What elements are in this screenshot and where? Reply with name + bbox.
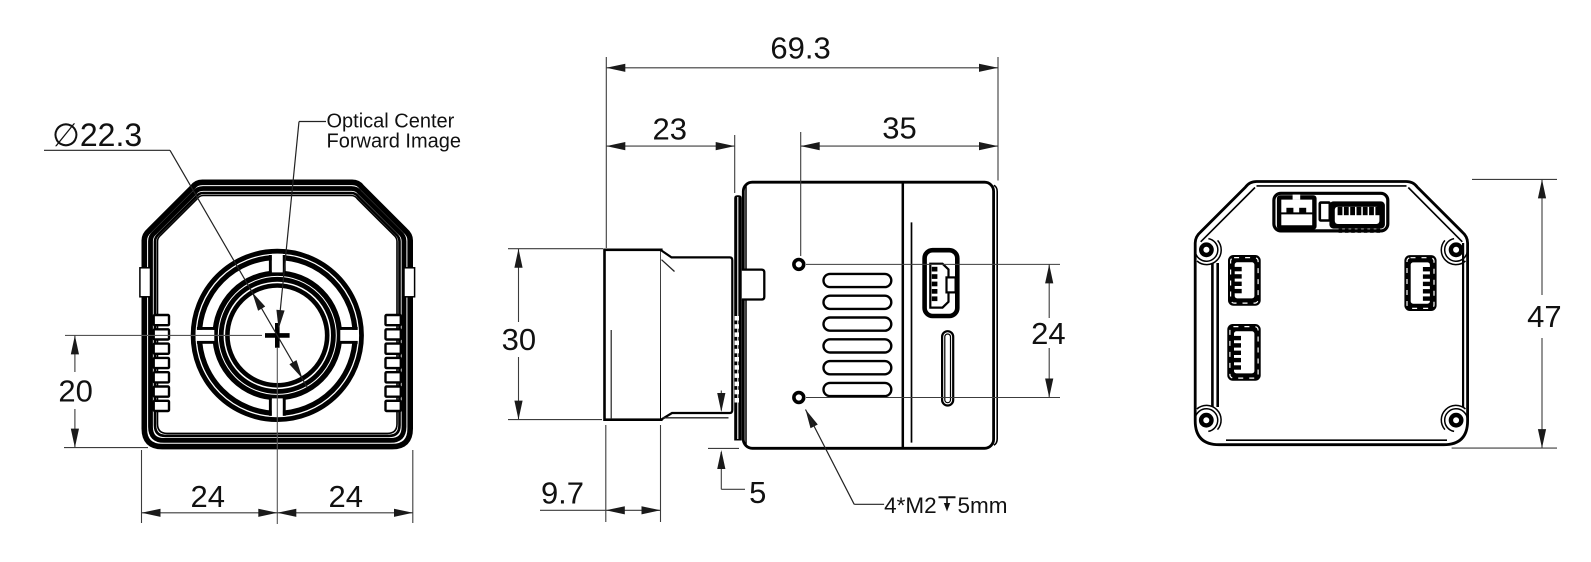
svg-text:30: 30 — [502, 322, 536, 357]
svg-text:9.7: 9.7 — [541, 476, 584, 511]
svg-text:5mm: 5mm — [958, 493, 1008, 518]
svg-text:∅22.3: ∅22.3 — [52, 117, 142, 153]
svg-text:23: 23 — [653, 112, 687, 147]
svg-text:5: 5 — [749, 475, 766, 510]
svg-text:24: 24 — [191, 479, 225, 514]
svg-text:Forward Image: Forward Image — [327, 131, 462, 153]
svg-text:35: 35 — [882, 111, 916, 146]
svg-text:69.3: 69.3 — [770, 31, 830, 66]
svg-text:Optical Center: Optical Center — [327, 111, 455, 133]
svg-text:4*M2: 4*M2 — [884, 493, 937, 518]
svg-text:24: 24 — [1031, 316, 1065, 351]
svg-text:24: 24 — [329, 479, 363, 514]
svg-text:47: 47 — [1527, 299, 1561, 334]
svg-text:20: 20 — [58, 374, 92, 409]
